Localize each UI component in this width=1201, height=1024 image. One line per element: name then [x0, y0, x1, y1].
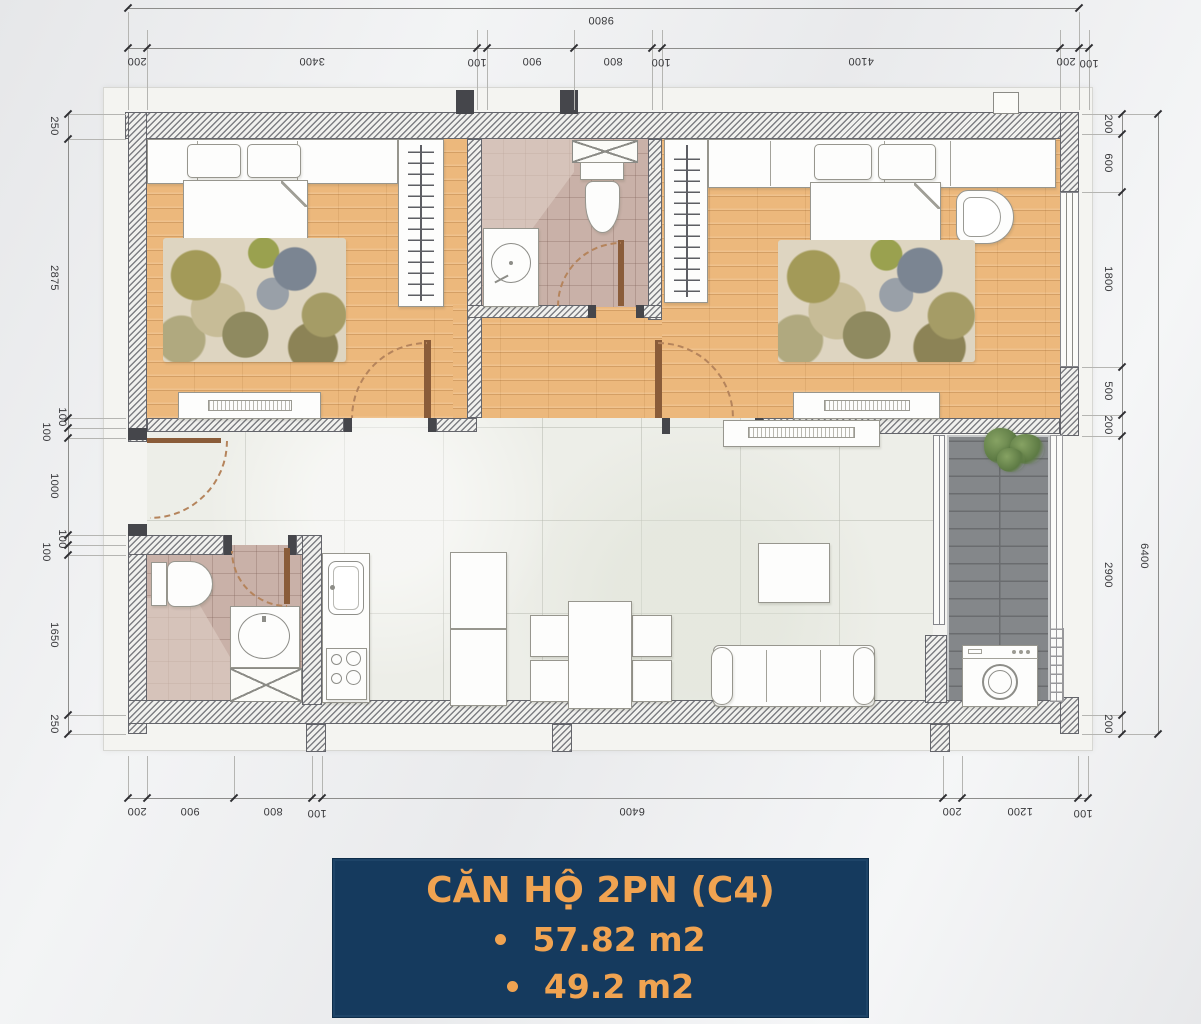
ext-line — [322, 756, 323, 798]
ext-line — [1082, 436, 1122, 437]
washer-knob — [1026, 650, 1030, 654]
armchair — [956, 190, 1014, 244]
refrigerator — [450, 629, 507, 706]
door-jamb — [636, 305, 644, 318]
washer-knob — [1019, 650, 1023, 654]
dim-line-right — [1122, 114, 1123, 734]
dim-label: 4100 — [848, 55, 874, 67]
area-gross: 57.82 m2 — [532, 920, 705, 959]
wall-bedroom1-bottom-a — [147, 418, 344, 432]
rug-bedroom2 — [778, 240, 975, 362]
sofa — [713, 645, 875, 707]
dim-label: 1000 — [48, 473, 60, 499]
dim-line-top-total — [128, 8, 1079, 9]
balcony-sliding-door — [933, 435, 945, 625]
burner-icon — [331, 654, 342, 665]
ext-line — [68, 428, 126, 429]
wall-stub — [993, 92, 1019, 114]
burner-icon — [346, 651, 361, 666]
dim-label-top-total: 9800 — [588, 14, 614, 26]
area-row: 57.82 m2 — [495, 920, 705, 959]
washer-door-inner — [988, 670, 1012, 694]
dim-label: 600 — [1102, 153, 1114, 172]
dim-label: 200 — [127, 55, 146, 67]
dim-label: 6400 — [619, 805, 645, 817]
hanging-rail-bar — [420, 145, 422, 301]
dining-chair — [632, 615, 672, 657]
door-jamb — [588, 305, 596, 318]
wall-top — [125, 112, 1079, 139]
dim-label: 250 — [48, 714, 60, 733]
shaft-box — [230, 668, 302, 702]
dim-label: 2875 — [48, 265, 60, 291]
wall-bedroom2-left — [648, 139, 662, 320]
ext-line — [652, 30, 653, 110]
rug-bedroom1 — [163, 238, 346, 362]
pillow — [247, 144, 301, 178]
drain-dot — [509, 261, 513, 265]
dim-label: 800 — [603, 55, 622, 67]
door-jamb — [428, 418, 436, 432]
wall-right-upper — [1060, 112, 1079, 192]
kitchen-sink-basin — [333, 566, 359, 610]
hallway-floor — [453, 305, 662, 422]
wall-balcony-pier — [925, 635, 947, 703]
dim-label: 800 — [263, 805, 282, 817]
ext-line — [68, 114, 126, 115]
apartment-title: CĂN HỘ 2PN (C4) — [426, 870, 775, 911]
dim-label: 100 — [651, 56, 670, 68]
dim-label: 900 — [522, 55, 541, 67]
wardrobe-divider — [950, 141, 951, 186]
dim-line-top — [128, 48, 1089, 49]
faucet-icon — [330, 585, 335, 590]
bullet-dot — [495, 934, 506, 945]
ext-line — [477, 30, 478, 110]
ext-line — [312, 756, 313, 798]
faucet-icon — [262, 616, 266, 622]
bedroom-2-window — [1060, 192, 1079, 367]
ext-line — [1082, 134, 1122, 135]
cabinet-tall — [450, 552, 507, 629]
wall-stub — [552, 724, 572, 752]
ext-line — [1078, 756, 1079, 798]
ext-line — [147, 30, 148, 110]
entry-jamb-bottom — [128, 524, 147, 536]
dining-table — [568, 601, 632, 709]
ext-line — [68, 734, 126, 735]
dim-label: 200 — [127, 805, 146, 817]
entry-jamb-top — [128, 428, 147, 440]
dim-label: 100 — [56, 407, 68, 426]
tv-cabinet-detail — [748, 427, 855, 438]
dining-chair — [632, 660, 672, 702]
wall-stub — [930, 724, 950, 752]
wardrobe-divider — [770, 141, 771, 186]
dim-label: 200 — [942, 805, 961, 817]
dim-label: 200 — [1102, 114, 1114, 133]
bullet-dot — [507, 981, 518, 992]
balcony-rail-ticks — [1050, 628, 1064, 702]
sofa-seam — [766, 650, 767, 702]
washer-knob — [1012, 650, 1016, 654]
dim-tick — [1075, 4, 1083, 12]
dim-label: 250 — [48, 116, 60, 135]
wall-stub — [456, 90, 474, 114]
wall-bath2-right — [302, 535, 322, 705]
dim-label: 100 — [40, 542, 52, 561]
ext-line — [68, 139, 126, 140]
dim-label-right-total: 6400 — [1138, 543, 1150, 569]
dim-label: 1200 — [1007, 805, 1033, 817]
dining-chair — [530, 660, 570, 702]
sofa-armrest — [711, 647, 733, 705]
ext-line — [68, 715, 126, 716]
dim-label: 500 — [1102, 381, 1114, 400]
ext-line — [1082, 192, 1122, 193]
toilet-tank — [151, 562, 167, 606]
shaft-box — [572, 140, 638, 163]
wall-bath2-top-a — [128, 535, 224, 555]
sofa-armrest — [853, 647, 875, 705]
dim-label: 100 — [40, 422, 52, 441]
ext-line — [943, 756, 944, 798]
ext-line — [68, 535, 126, 536]
plant-icon — [997, 448, 1025, 472]
floorplan-page: 9800 200 3400 100 900 800 100 4100 200 1… — [0, 0, 1201, 1024]
dim-label: 1650 — [48, 622, 60, 648]
ext-line — [68, 555, 126, 556]
wall-right-corner — [1060, 697, 1079, 734]
ext-line — [68, 418, 126, 419]
ext-line — [662, 30, 663, 110]
dim-label: 200 — [1056, 55, 1075, 67]
ext-line — [487, 30, 488, 110]
door-jamb — [344, 418, 352, 432]
blanket-fold — [281, 181, 307, 207]
washer-detergent-tray — [968, 649, 982, 654]
area-row: 49.2 m2 — [507, 967, 694, 1006]
pillow — [814, 144, 872, 180]
dim-label: 100 — [307, 807, 326, 819]
wall-bedroom1-right — [467, 139, 482, 418]
dim-label: 100 — [467, 56, 486, 68]
dim-label: 1800 — [1102, 266, 1114, 292]
wall-left-upper — [128, 112, 147, 442]
dim-tick — [1154, 730, 1162, 738]
toilet-icon — [167, 561, 213, 607]
hanging-rail-bar — [686, 145, 688, 297]
toilet-tank — [580, 162, 624, 180]
ext-line — [234, 756, 235, 798]
ext-line — [147, 756, 148, 798]
dim-label: 100 — [56, 529, 68, 548]
ext-line — [1088, 756, 1089, 798]
coffee-table — [758, 543, 830, 603]
dining-chair — [530, 615, 570, 657]
ext-line — [1089, 30, 1090, 110]
door-jamb — [662, 418, 670, 434]
ext-line — [128, 756, 129, 798]
ext-line — [1060, 30, 1061, 110]
dim-label: 100 — [1073, 807, 1092, 819]
dresser-detail — [208, 400, 292, 411]
area-net: 49.2 m2 — [544, 967, 694, 1006]
dim-tick — [1084, 794, 1092, 802]
pillow — [878, 144, 936, 180]
dim-line-right-total — [1158, 114, 1159, 734]
dim-label: 2900 — [1102, 562, 1114, 588]
washer-panel-line — [962, 658, 1038, 659]
title-block: CĂN HỘ 2PN (C4) 57.82 m2 49.2 m2 — [332, 858, 869, 1018]
ext-line — [574, 30, 575, 110]
wall-right-mid — [1060, 367, 1079, 436]
dim-label: 3400 — [299, 55, 325, 67]
dim-label: 900 — [180, 805, 199, 817]
burner-icon — [331, 673, 342, 684]
dim-label: 100 — [1079, 57, 1098, 69]
wall-stub — [560, 90, 578, 114]
ext-line — [68, 545, 126, 546]
ext-line — [962, 756, 963, 798]
ext-line — [68, 438, 126, 439]
ext-line — [1082, 367, 1122, 368]
armchair-seat — [963, 197, 1001, 237]
sofa-seam — [820, 650, 821, 702]
pillow — [187, 144, 241, 178]
wall-bedroom1-bottom-b — [436, 418, 477, 432]
burner-icon — [346, 670, 361, 685]
blanket-fold — [914, 183, 940, 209]
door-jamb — [224, 535, 232, 555]
dresser-detail — [824, 400, 910, 411]
dim-label: 200 — [1102, 415, 1114, 434]
dim-label: 200 — [1102, 714, 1114, 733]
wall-stub — [306, 724, 326, 752]
